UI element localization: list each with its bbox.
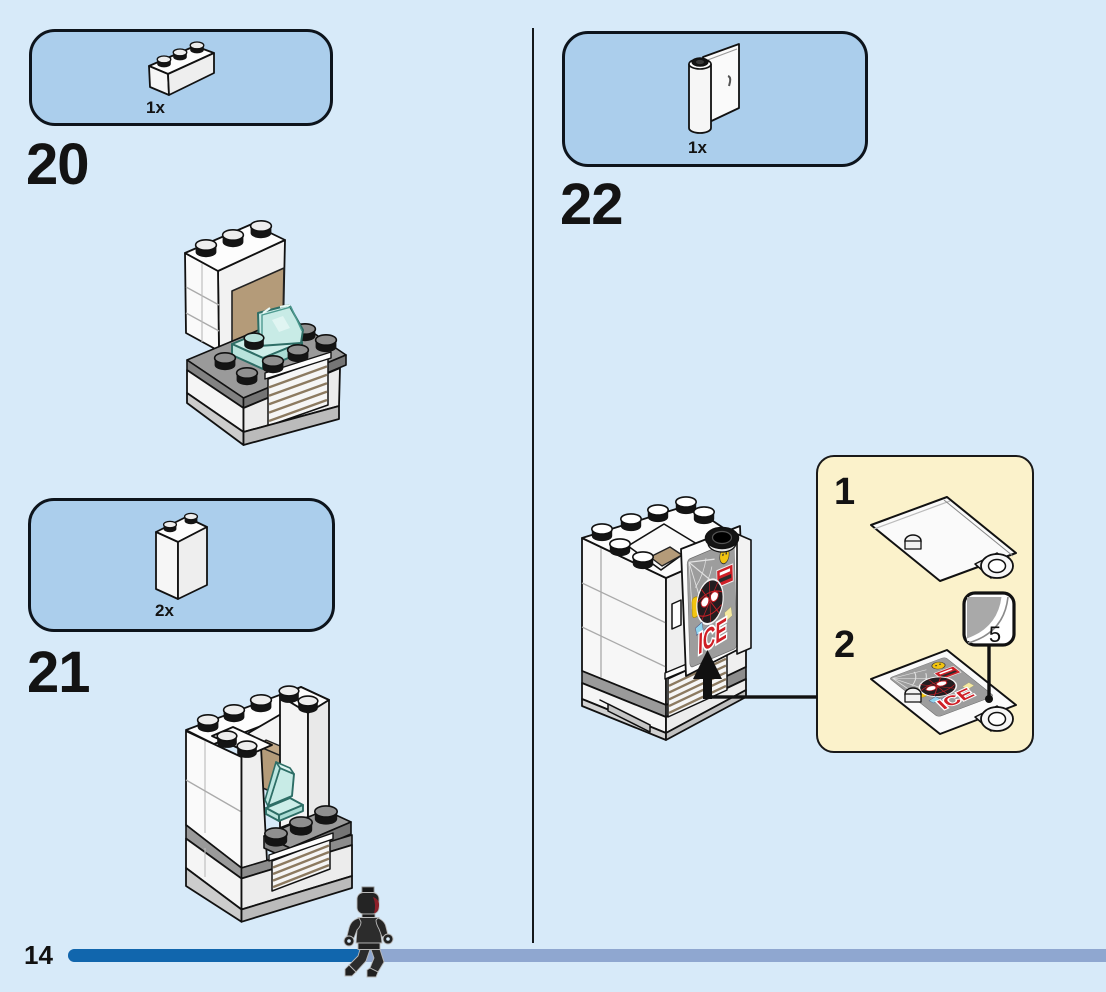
svg-text:5: 5: [989, 622, 1001, 647]
